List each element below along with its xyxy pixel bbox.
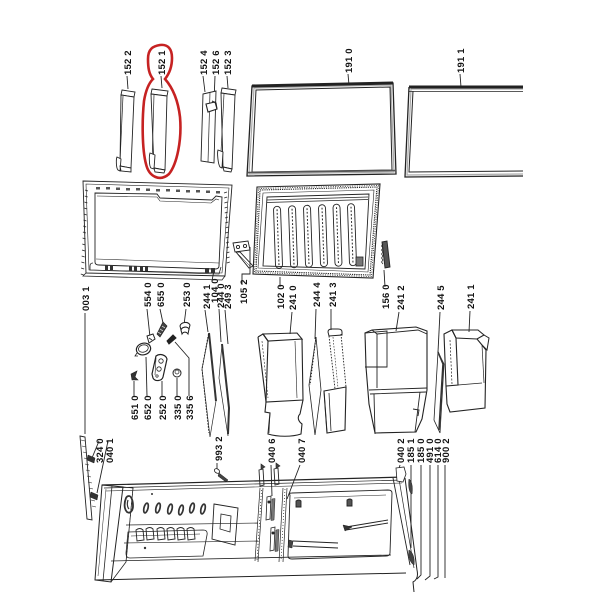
svg-text:554 0: 554 0: [143, 282, 154, 307]
svg-text:040 6: 040 6: [267, 438, 278, 463]
svg-text:003 1: 003 1: [81, 286, 92, 311]
svg-text:241 3: 241 3: [328, 282, 339, 307]
svg-text:244 4: 244 4: [312, 282, 323, 307]
svg-text:252 0: 252 0: [158, 395, 169, 420]
svg-text:152 2: 152 2: [123, 50, 134, 75]
svg-text:040 7: 040 7: [297, 438, 308, 463]
svg-text:040 1: 040 1: [105, 438, 116, 463]
svg-text:152 4: 152 4: [199, 50, 210, 75]
svg-text:249 3: 249 3: [223, 284, 234, 309]
svg-text:241 0: 241 0: [288, 285, 299, 310]
svg-text:191 0: 191 0: [344, 48, 355, 73]
svg-text:652 0: 652 0: [143, 395, 154, 420]
svg-text:241 1: 241 1: [466, 284, 477, 309]
svg-text:152 3: 152 3: [223, 50, 234, 75]
svg-text:651 0: 651 0: [130, 395, 141, 420]
svg-text:335 0: 335 0: [173, 395, 184, 420]
svg-text:244 5: 244 5: [436, 285, 447, 310]
svg-text:993 2: 993 2: [214, 436, 225, 461]
svg-text:191 1: 191 1: [456, 48, 467, 73]
svg-text:152 1: 152 1: [157, 50, 168, 75]
svg-text:156 0: 156 0: [381, 284, 392, 309]
svg-text:105 2: 105 2: [239, 279, 250, 304]
svg-text:241 2: 241 2: [396, 285, 407, 310]
svg-text:152 6: 152 6: [211, 50, 222, 75]
svg-text:335 6: 335 6: [185, 395, 196, 420]
svg-text:102 0: 102 0: [276, 284, 287, 309]
svg-text:655 0: 655 0: [156, 282, 167, 307]
svg-text:253 0: 253 0: [182, 282, 193, 307]
svg-text:900 2: 900 2: [441, 438, 452, 463]
